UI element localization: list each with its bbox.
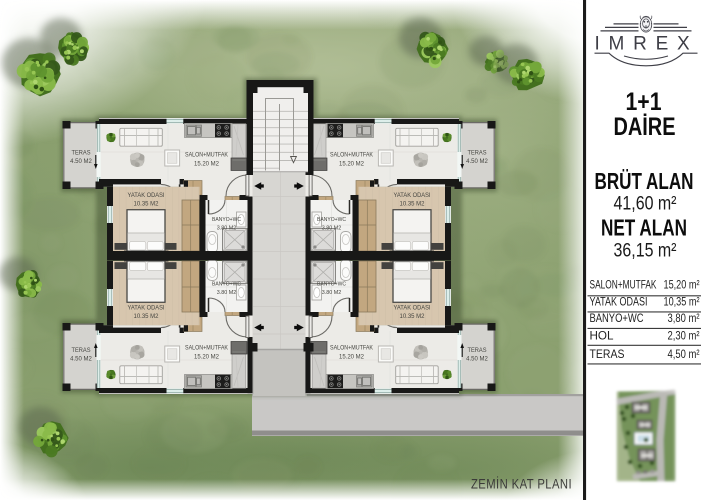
svg-text:BANYO+WC: BANYO+WC [590, 311, 644, 325]
svg-text:4.50 M2: 4.50 M2 [466, 159, 488, 165]
svg-text:BANYO+WC: BANYO+WC [212, 282, 241, 288]
svg-text:BRÜT ALAN: BRÜT ALAN [595, 168, 694, 194]
svg-text:ZEMİN KAT PLANI: ZEMİN KAT PLANI [471, 475, 572, 492]
svg-text:TERAS: TERAS [468, 150, 487, 157]
svg-text:4.50 M2: 4.50 M2 [70, 159, 92, 165]
svg-text:HOL: HOL [590, 329, 614, 343]
svg-text:3.80 M2: 3.80 M2 [217, 225, 236, 231]
svg-text:TERAS: TERAS [590, 347, 625, 361]
svg-text:36,15 m²: 36,15 m² [614, 240, 677, 262]
svg-text:TERAS: TERAS [72, 150, 91, 157]
svg-text:3.80 M2: 3.80 M2 [322, 290, 341, 296]
svg-text:SALON+MUTFAK: SALON+MUTFAK [185, 151, 228, 158]
svg-text:SALON+MUTFAK: SALON+MUTFAK [590, 278, 657, 292]
svg-text:BANYO+WC: BANYO+WC [317, 282, 346, 288]
svg-text:15.20 M2: 15.20 M2 [194, 355, 220, 361]
svg-text:SALON+MUTFAK: SALON+MUTFAK [185, 345, 228, 352]
svg-text:1+1: 1+1 [626, 88, 662, 116]
svg-text:15.20 M2: 15.20 M2 [194, 161, 220, 167]
svg-text:SALON+MUTFAK: SALON+MUTFAK [330, 151, 373, 158]
svg-text:YATAK ODASI: YATAK ODASI [590, 295, 648, 309]
svg-text:NET ALAN: NET ALAN [601, 215, 687, 241]
svg-text:41,60 m²: 41,60 m² [614, 193, 677, 215]
svg-text:YATAK ODASI: YATAK ODASI [128, 193, 165, 199]
svg-text:15.20 M2: 15.20 M2 [339, 161, 365, 167]
svg-text:SALON+MUTFAK: SALON+MUTFAK [330, 345, 373, 352]
svg-text:YATAK ODASI: YATAK ODASI [128, 305, 165, 311]
svg-text:YATAK ODASI: YATAK ODASI [394, 305, 431, 311]
svg-text:3,80 m²: 3,80 m² [668, 311, 700, 325]
svg-text:10.35 M2: 10.35 M2 [399, 314, 425, 320]
svg-text:10,35 m²: 10,35 m² [664, 295, 700, 309]
svg-text:4.50 M2: 4.50 M2 [70, 357, 92, 363]
svg-text:3.80 M2: 3.80 M2 [217, 290, 236, 296]
svg-text:10.35 M2: 10.35 M2 [133, 314, 159, 320]
svg-text:15,20 m²: 15,20 m² [664, 278, 700, 292]
svg-text:BANYO+WC: BANYO+WC [212, 217, 241, 223]
svg-text:15.20 M2: 15.20 M2 [339, 355, 365, 361]
svg-text:10.35 M2: 10.35 M2 [399, 202, 425, 208]
svg-text:4.50 M2: 4.50 M2 [466, 357, 488, 363]
svg-text:4,50 m²: 4,50 m² [668, 347, 700, 361]
svg-text:BANYO+WC: BANYO+WC [317, 217, 346, 223]
svg-text:TERAS: TERAS [468, 347, 487, 354]
svg-text:DAİRE: DAİRE [614, 113, 676, 141]
svg-text:YATAK ODASI: YATAK ODASI [394, 193, 431, 199]
svg-text:IMREX: IMREX [595, 33, 699, 55]
svg-text:2,30 m²: 2,30 m² [668, 329, 700, 343]
svg-text:TERAS: TERAS [72, 347, 91, 354]
svg-text:3.80 M2: 3.80 M2 [322, 225, 341, 231]
svg-text:10.35 M2: 10.35 M2 [133, 202, 159, 208]
